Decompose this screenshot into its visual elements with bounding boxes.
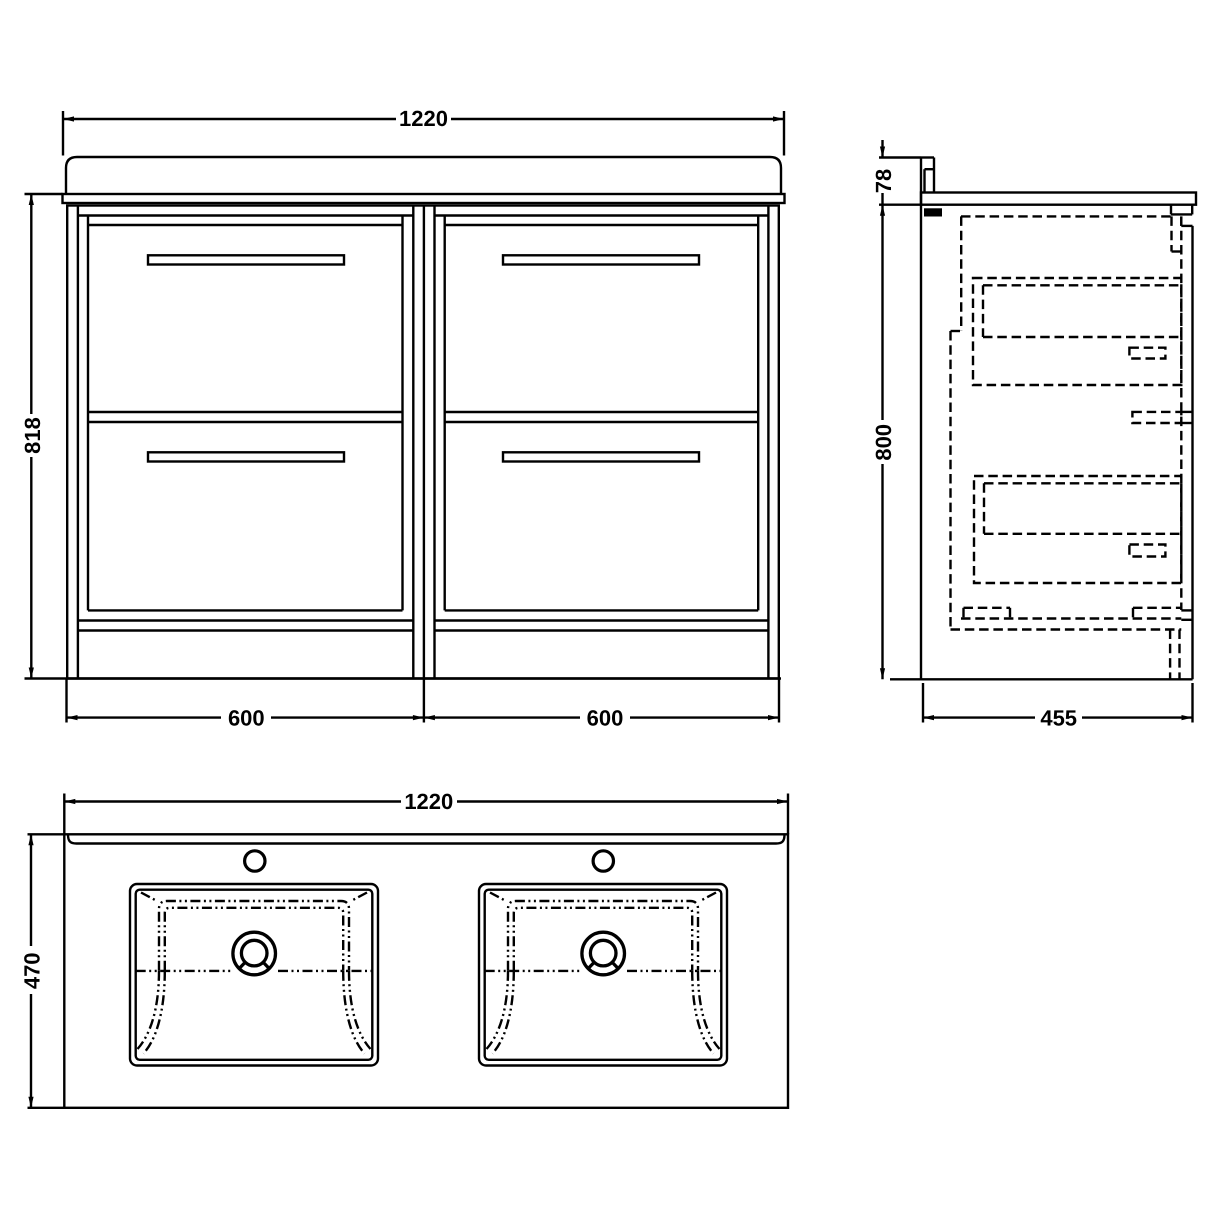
- svg-text:818: 818: [20, 417, 45, 454]
- svg-text:600: 600: [587, 706, 624, 731]
- svg-text:455: 455: [1040, 706, 1077, 731]
- svg-text:1220: 1220: [404, 789, 453, 814]
- svg-text:1220: 1220: [399, 106, 448, 131]
- svg-text:800: 800: [871, 424, 896, 461]
- svg-text:78: 78: [871, 169, 896, 193]
- svg-text:600: 600: [228, 706, 265, 731]
- svg-text:470: 470: [20, 952, 45, 989]
